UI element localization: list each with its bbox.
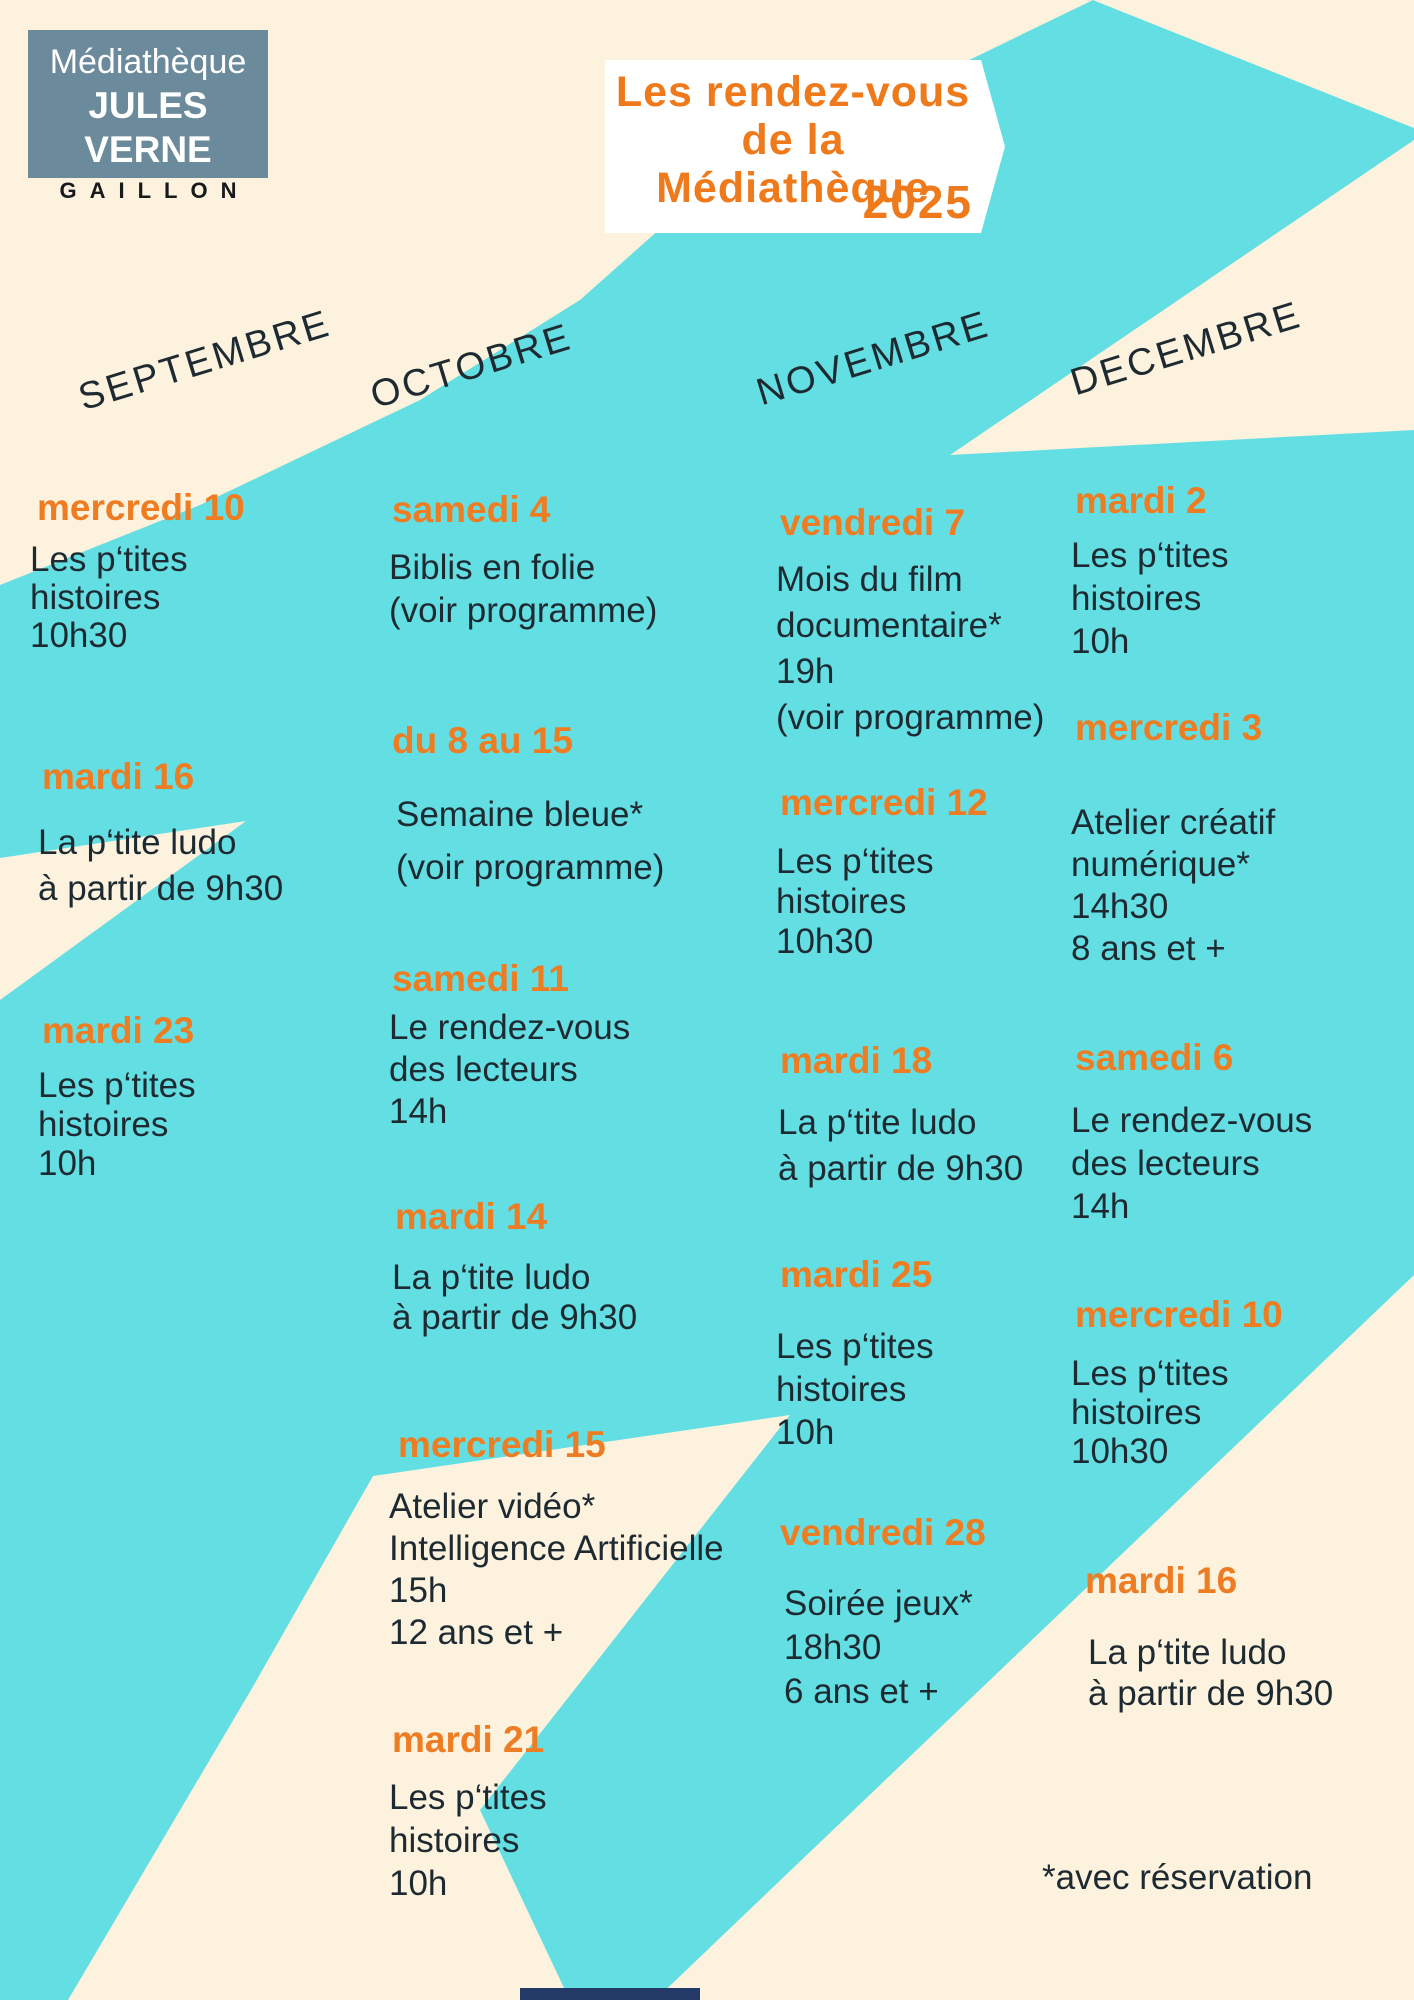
reservation-footnote: *avec réservation — [1042, 1858, 1312, 1898]
event-detail-line: Biblis en folie — [389, 546, 657, 589]
event-detail-line: Les p‘tites — [1071, 534, 1229, 577]
event-detail-line: (voir programme) — [776, 695, 1044, 741]
event-details: Mois du filmdocumentaire*19h(voir progra… — [776, 557, 1044, 741]
event-detail-line: (voir programme) — [396, 841, 664, 894]
event-detail-line: à partir de 9h30 — [778, 1146, 1023, 1192]
event-details: Les p‘titeshistoires10h — [38, 1066, 196, 1183]
event-date: vendredi 7 — [780, 502, 965, 544]
event-detail-line: 14h30 — [1071, 886, 1275, 928]
event-details: Biblis en folie(voir programme) — [389, 546, 657, 632]
event-detail-line: histoires — [38, 1105, 196, 1144]
event-detail-line: 10h30 — [776, 922, 934, 962]
event-date: vendredi 28 — [780, 1512, 986, 1554]
event-detail-line: Semaine bleue* — [396, 788, 664, 841]
event-detail-line: 10h — [38, 1144, 196, 1183]
event-details: Soirée jeux*18h306 ans et + — [784, 1582, 973, 1714]
event-date: mardi 16 — [1085, 1560, 1237, 1602]
event-details: La p‘tite ludoà partir de 9h30 — [778, 1100, 1023, 1192]
event-date: mardi 25 — [780, 1254, 932, 1296]
event-date: du 8 au 15 — [392, 720, 573, 762]
event-detail-line: 10h — [776, 1411, 934, 1454]
event-detail-line: Le rendez-vous — [389, 1007, 630, 1049]
library-logo: Médiathèque JULES VERNE GAILLON — [28, 30, 268, 178]
bottom-navy-bar — [520, 1988, 700, 2000]
event-date: samedi 6 — [1075, 1037, 1233, 1079]
event-date: mercredi 3 — [1075, 707, 1262, 749]
month-label-0: SEPTEMBRE — [74, 303, 337, 421]
event-date: mardi 18 — [780, 1040, 932, 1082]
event-date: mardi 16 — [42, 756, 194, 798]
event-detail-line: histoires — [389, 1819, 547, 1862]
event-detail-line: 10h — [1071, 620, 1229, 663]
event-detail-line: à partir de 9h30 — [1088, 1673, 1333, 1714]
event-detail-line: documentaire* — [776, 603, 1044, 649]
event-details: Le rendez-vousdes lecteurs14h — [389, 1007, 630, 1133]
event-details: Atelier vidéo*Intelligence Artificielle1… — [389, 1486, 724, 1654]
event-detail-line: 19h — [776, 649, 1044, 695]
poster-title-line1: Les rendez-vous — [605, 68, 981, 116]
event-details: La p‘tite ludoà partir de 9h30 — [1088, 1632, 1333, 1714]
event-date: mercredi 12 — [780, 782, 988, 824]
event-detail-line: Atelier créatif — [1071, 802, 1275, 844]
event-detail-line: histoires — [1071, 1393, 1229, 1432]
event-detail-line: Le rendez-vous — [1071, 1099, 1312, 1142]
event-date: mardi 21 — [392, 1719, 544, 1761]
event-detail-line: Les p‘tites — [776, 842, 934, 882]
event-date: mercredi 10 — [1075, 1294, 1283, 1336]
event-date: mercredi 15 — [398, 1424, 606, 1466]
event-detail-line: La p‘tite ludo — [38, 820, 283, 866]
event-detail-line: 8 ans et + — [1071, 928, 1275, 970]
event-date: mardi 23 — [42, 1010, 194, 1052]
poster-title-box: Les rendez-vous de la Médiathèque 2025 — [605, 60, 1005, 233]
event-detail-line: Les p‘tites — [38, 1066, 196, 1105]
event-details: Les p‘titeshistoires10h — [1071, 534, 1229, 663]
event-detail-line: La p‘tite ludo — [1088, 1632, 1333, 1673]
event-detail-line: 10h30 — [1071, 1432, 1229, 1471]
event-details: Les p‘titeshistoires10h30 — [1071, 1354, 1229, 1471]
event-details: Les p‘titeshistoires10h30 — [30, 541, 188, 655]
event-detail-line: Les p‘tites — [389, 1776, 547, 1819]
event-detail-line: 10h30 — [30, 617, 188, 655]
event-detail-line: 14h — [1071, 1185, 1312, 1228]
event-date: mardi 2 — [1075, 480, 1207, 522]
event-detail-line: La p‘tite ludo — [778, 1100, 1023, 1146]
event-detail-line: Intelligence Artificielle — [389, 1528, 724, 1570]
event-details: La p‘tite ludoà partir de 9h30 — [38, 820, 283, 912]
event-date: mardi 14 — [395, 1196, 547, 1238]
event-details: La p‘tite ludoà partir de 9h30 — [392, 1258, 637, 1338]
event-detail-line: 12 ans et + — [389, 1612, 724, 1654]
event-details: Les p‘titeshistoires10h30 — [776, 842, 934, 962]
logo-city: GAILLON — [28, 172, 268, 210]
event-detail-line: Les p‘tites — [30, 541, 188, 579]
event-detail-line: Mois du film — [776, 557, 1044, 603]
event-detail-line: 14h — [389, 1091, 630, 1133]
event-date: samedi 11 — [392, 958, 569, 1000]
event-detail-line: histoires — [776, 1368, 934, 1411]
event-detail-line: (voir programme) — [389, 589, 657, 632]
event-detail-line: 18h30 — [784, 1626, 973, 1670]
event-detail-line: à partir de 9h30 — [392, 1298, 637, 1338]
event-detail-line: des lecteurs — [1071, 1142, 1312, 1185]
event-detail-line: histoires — [30, 579, 188, 617]
event-detail-line: à partir de 9h30 — [38, 866, 283, 912]
event-details: Les p‘titeshistoires10h — [389, 1776, 547, 1905]
event-detail-line: Les p‘tites — [1071, 1354, 1229, 1393]
event-details: Les p‘titeshistoires10h — [776, 1325, 934, 1454]
logo-name: Médiathèque — [28, 40, 268, 84]
event-detail-line: 15h — [389, 1570, 724, 1612]
event-details: Le rendez-vousdes lecteurs14h — [1071, 1099, 1312, 1228]
event-date: samedi 4 — [392, 489, 550, 531]
event-detail-line: Atelier vidéo* — [389, 1486, 724, 1528]
event-detail-line: 6 ans et + — [784, 1670, 973, 1714]
event-detail-line: histoires — [776, 882, 934, 922]
event-detail-line: des lecteurs — [389, 1049, 630, 1091]
event-details: Semaine bleue*(voir programme) — [396, 788, 664, 894]
event-detail-line: Les p‘tites — [776, 1325, 934, 1368]
event-detail-line: 10h — [389, 1862, 547, 1905]
event-detail-line: La p‘tite ludo — [392, 1258, 637, 1298]
event-detail-line: numérique* — [1071, 844, 1275, 886]
event-poster: Médiathèque JULES VERNE GAILLON Les rend… — [0, 0, 1414, 2000]
event-detail-line: histoires — [1071, 577, 1229, 620]
event-date: mercredi 10 — [37, 487, 245, 529]
event-details: Atelier créatifnumérique*14h308 ans et + — [1071, 802, 1275, 970]
logo-name-bold: JULES VERNE — [28, 84, 268, 172]
poster-title-year: 2025 — [863, 175, 973, 229]
event-detail-line: Soirée jeux* — [784, 1582, 973, 1626]
